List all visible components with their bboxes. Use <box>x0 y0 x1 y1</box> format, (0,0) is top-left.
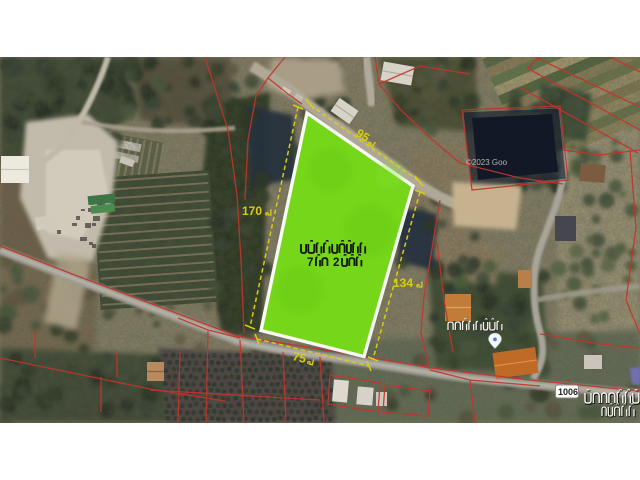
svg-text:134: 134 <box>393 276 413 290</box>
svg-text:2: 2 <box>333 257 339 269</box>
svg-text:1006: 1006 <box>558 387 578 397</box>
svg-text:170: 170 <box>242 204 262 218</box>
svg-text:©2023 Goo: ©2023 Goo <box>466 158 508 167</box>
svg-text:7: 7 <box>307 257 313 269</box>
